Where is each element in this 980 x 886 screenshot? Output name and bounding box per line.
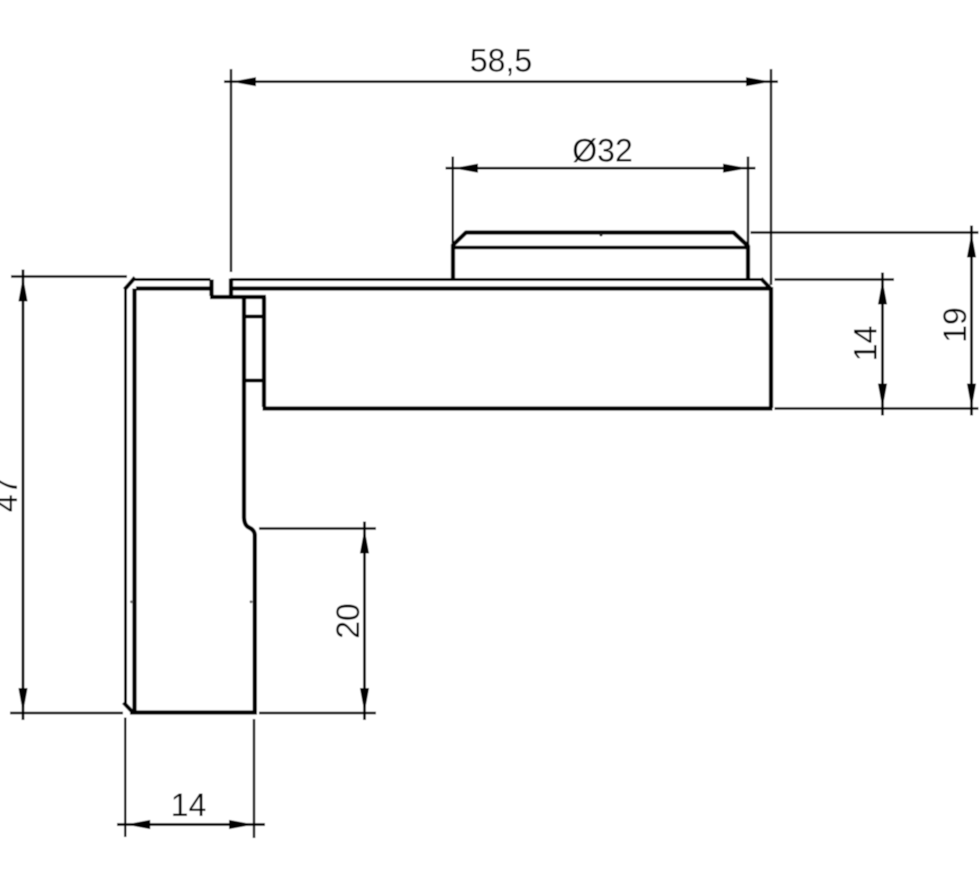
- svg-text:20: 20: [330, 603, 366, 639]
- svg-text:14: 14: [847, 326, 883, 362]
- svg-text:58,5: 58,5: [470, 43, 532, 79]
- svg-text:14: 14: [171, 787, 207, 823]
- svg-text:19: 19: [937, 307, 973, 343]
- svg-text:47: 47: [0, 477, 24, 513]
- svg-text:Ø32: Ø32: [572, 132, 632, 168]
